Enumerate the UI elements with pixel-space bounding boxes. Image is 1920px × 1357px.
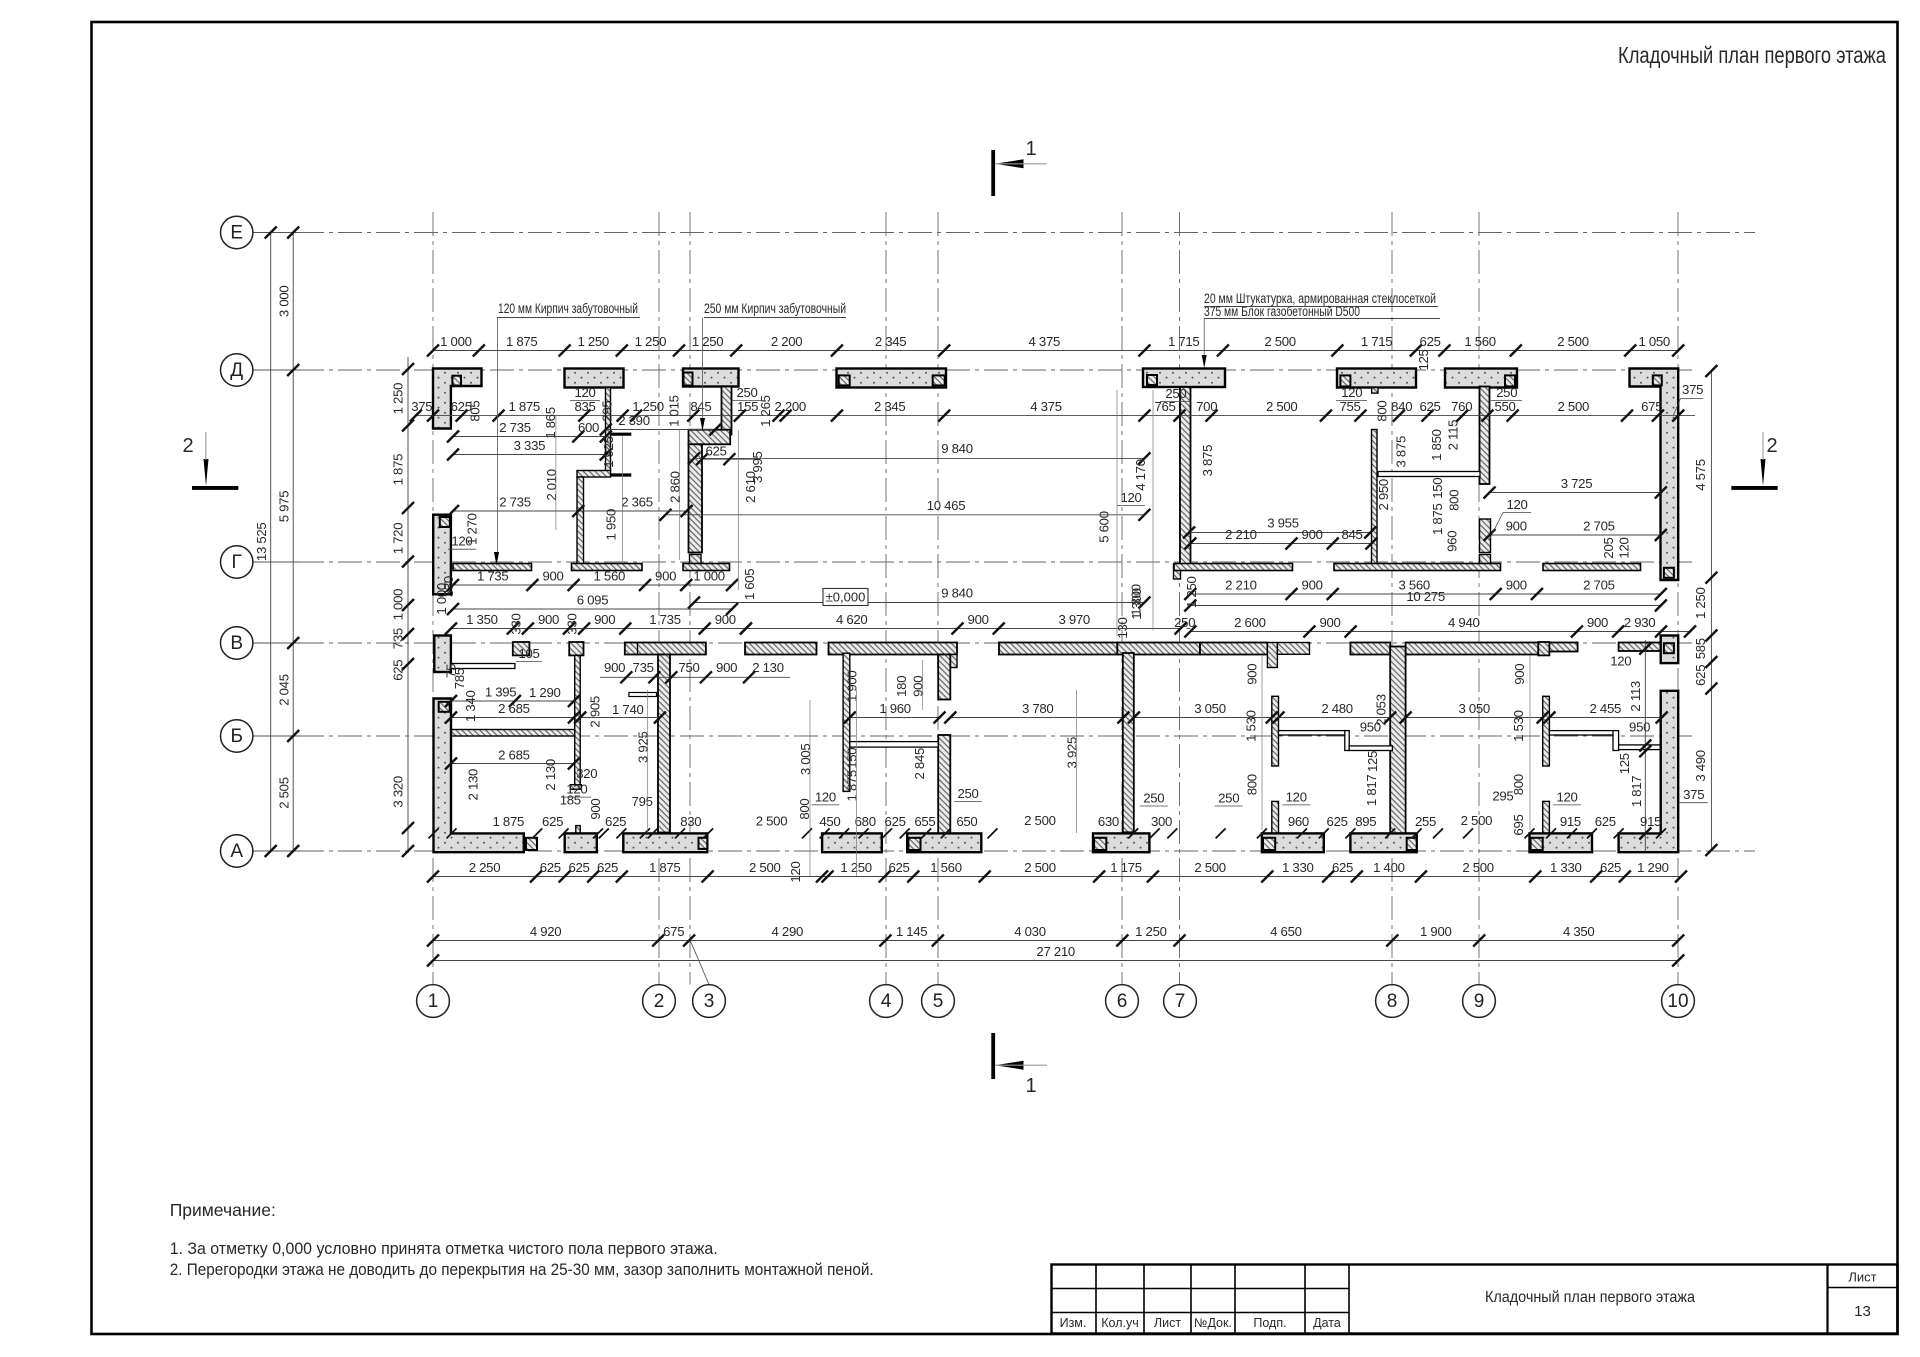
svg-text:1 875: 1 875 bbox=[1430, 503, 1445, 535]
svg-text:1 740: 1 740 bbox=[612, 702, 644, 717]
svg-text:2 860: 2 860 bbox=[668, 471, 683, 503]
svg-text:625: 625 bbox=[597, 860, 618, 875]
svg-text:5 600: 5 600 bbox=[1097, 511, 1112, 543]
svg-text:3 335: 3 335 bbox=[514, 438, 546, 453]
svg-text:2 345: 2 345 bbox=[875, 334, 907, 349]
svg-text:4 940: 4 940 bbox=[1448, 615, 1480, 630]
svg-text:105: 105 bbox=[518, 646, 539, 661]
svg-text:900: 900 bbox=[588, 799, 603, 820]
svg-text:650: 650 bbox=[956, 814, 977, 829]
svg-text:10: 10 bbox=[1667, 991, 1688, 1012]
svg-text:2 130: 2 130 bbox=[543, 759, 558, 791]
svg-text:250: 250 bbox=[1174, 615, 1195, 630]
svg-text:1 250: 1 250 bbox=[391, 383, 406, 415]
svg-text:1 330: 1 330 bbox=[1282, 860, 1314, 875]
svg-text:1 145: 1 145 bbox=[896, 924, 928, 939]
svg-text:3 970: 3 970 bbox=[1058, 612, 1090, 627]
svg-text:900: 900 bbox=[542, 569, 563, 584]
svg-text:900: 900 bbox=[1319, 615, 1340, 630]
svg-text:120: 120 bbox=[1506, 497, 1527, 512]
svg-text:295: 295 bbox=[600, 401, 615, 422]
svg-text:№Док.: №Док. bbox=[1194, 1316, 1232, 1330]
svg-text:250: 250 bbox=[1218, 791, 1239, 806]
svg-text:675: 675 bbox=[663, 924, 684, 939]
svg-text:125: 125 bbox=[1617, 753, 1632, 774]
svg-text:2: 2 bbox=[182, 435, 193, 457]
svg-text:9 840: 9 840 bbox=[941, 441, 973, 456]
svg-text:1 817: 1 817 bbox=[1364, 775, 1379, 807]
svg-text:695: 695 bbox=[1511, 814, 1526, 835]
svg-text:2 735: 2 735 bbox=[499, 420, 531, 435]
svg-text:3 725: 3 725 bbox=[1561, 476, 1593, 491]
svg-text:2 200: 2 200 bbox=[774, 399, 806, 414]
svg-text:1 900: 1 900 bbox=[1420, 924, 1452, 939]
svg-text:2 500: 2 500 bbox=[1194, 860, 1226, 875]
svg-text:375: 375 bbox=[411, 399, 432, 414]
svg-text:1. За отметку 0,000 условно пр: 1. За отметку 0,000 условно принята отме… bbox=[170, 1239, 718, 1258]
svg-text:Е: Е bbox=[230, 223, 243, 244]
svg-text:1 250: 1 250 bbox=[635, 334, 667, 349]
svg-text:2 500: 2 500 bbox=[756, 814, 788, 829]
svg-text:125: 125 bbox=[1365, 751, 1380, 772]
svg-text:1 050: 1 050 bbox=[1638, 334, 1670, 349]
svg-text:Кладочный план первого этажа: Кладочный план первого этажа bbox=[1618, 42, 1887, 68]
svg-text:655: 655 bbox=[914, 814, 935, 829]
svg-text:2 685: 2 685 bbox=[498, 701, 530, 716]
svg-text:4 575: 4 575 bbox=[1693, 459, 1708, 491]
svg-text:2 600: 2 600 bbox=[1234, 615, 1266, 630]
svg-text:625: 625 bbox=[568, 860, 589, 875]
svg-text:1 735: 1 735 bbox=[477, 569, 509, 584]
svg-text:1 250: 1 250 bbox=[1693, 587, 1708, 619]
svg-text:3 925: 3 925 bbox=[636, 731, 651, 763]
svg-text:2 500: 2 500 bbox=[1557, 334, 1589, 349]
svg-text:900: 900 bbox=[1506, 519, 1527, 534]
svg-text:900: 900 bbox=[1244, 664, 1259, 685]
svg-text:4 620: 4 620 bbox=[836, 612, 868, 627]
svg-text:3 000: 3 000 bbox=[277, 286, 292, 318]
svg-text:550: 550 bbox=[1494, 399, 1515, 414]
svg-text:2 130: 2 130 bbox=[752, 660, 784, 675]
svg-text:3 875: 3 875 bbox=[1200, 445, 1215, 477]
svg-text:120: 120 bbox=[566, 782, 587, 797]
svg-text:3 955: 3 955 bbox=[1267, 516, 1299, 531]
svg-text:120: 120 bbox=[1610, 653, 1631, 668]
svg-text:2 390: 2 390 bbox=[618, 413, 650, 428]
svg-text:900: 900 bbox=[1302, 578, 1323, 593]
svg-text:375 мм Блок газобетонный D500: 375 мм Блок газобетонный D500 bbox=[1204, 304, 1360, 319]
svg-text:795: 795 bbox=[632, 794, 653, 809]
svg-text:2 905: 2 905 bbox=[588, 696, 603, 728]
svg-text:1 000: 1 000 bbox=[693, 569, 725, 584]
svg-text:1 400: 1 400 bbox=[1373, 860, 1405, 875]
svg-text:1 300: 1 300 bbox=[1129, 584, 1144, 616]
svg-text:1 000: 1 000 bbox=[391, 589, 406, 621]
svg-text:1 875: 1 875 bbox=[493, 814, 525, 829]
svg-text:250: 250 bbox=[1165, 386, 1186, 401]
svg-text:625: 625 bbox=[605, 814, 626, 829]
svg-text:900: 900 bbox=[1512, 664, 1527, 685]
svg-text:1 735: 1 735 bbox=[649, 612, 681, 627]
svg-text:1 250: 1 250 bbox=[1184, 576, 1199, 608]
svg-text:375: 375 bbox=[1683, 787, 1704, 802]
svg-text:755: 755 bbox=[1339, 399, 1360, 414]
svg-text:180: 180 bbox=[894, 676, 909, 697]
svg-text:675: 675 bbox=[1641, 399, 1662, 414]
svg-text:1 250: 1 250 bbox=[632, 399, 664, 414]
svg-text:1 950: 1 950 bbox=[604, 509, 619, 541]
svg-text:700: 700 bbox=[1196, 399, 1217, 414]
svg-text:900: 900 bbox=[1587, 615, 1608, 630]
svg-text:1 875: 1 875 bbox=[391, 454, 406, 486]
svg-text:2 010: 2 010 bbox=[544, 469, 559, 501]
svg-text:1 330: 1 330 bbox=[1550, 860, 1582, 875]
svg-text:6 095: 6 095 bbox=[577, 593, 609, 608]
svg-text:2 950: 2 950 bbox=[1376, 479, 1391, 511]
svg-text:120: 120 bbox=[574, 385, 595, 400]
svg-text:900: 900 bbox=[715, 612, 736, 627]
svg-text:4 350: 4 350 bbox=[1563, 924, 1595, 939]
svg-text:2 113: 2 113 bbox=[1628, 681, 1643, 712]
svg-text:625: 625 bbox=[1693, 665, 1708, 686]
svg-text:250 мм Кирпич забутовочный: 250 мм Кирпич забутовочный bbox=[704, 301, 846, 316]
svg-text:800: 800 bbox=[1375, 401, 1390, 422]
svg-text:2 705: 2 705 bbox=[1583, 519, 1615, 534]
svg-text:1 720: 1 720 bbox=[391, 523, 406, 555]
svg-text:120: 120 bbox=[788, 861, 803, 882]
svg-text:2 705: 2 705 bbox=[1583, 578, 1615, 593]
svg-text:1 265: 1 265 bbox=[758, 395, 773, 427]
svg-text:900: 900 bbox=[604, 660, 625, 675]
svg-text:Б: Б bbox=[230, 726, 242, 747]
svg-text:2 365: 2 365 bbox=[621, 495, 653, 510]
svg-text:625: 625 bbox=[1332, 860, 1353, 875]
svg-text:10 465: 10 465 bbox=[927, 498, 966, 513]
svg-text:2 845: 2 845 bbox=[912, 748, 927, 780]
svg-text:1 250: 1 250 bbox=[577, 334, 609, 349]
svg-text:1 875: 1 875 bbox=[506, 334, 538, 349]
svg-text:840: 840 bbox=[1391, 399, 1412, 414]
svg-text:2 115: 2 115 bbox=[1446, 420, 1461, 451]
svg-text:1 015: 1 015 bbox=[667, 395, 682, 427]
svg-text:1 875: 1 875 bbox=[844, 770, 859, 802]
svg-text:2 500: 2 500 bbox=[1266, 399, 1298, 414]
svg-text:625: 625 bbox=[1419, 399, 1440, 414]
svg-text:785: 785 bbox=[452, 668, 467, 689]
svg-text:2 500: 2 500 bbox=[1558, 399, 1590, 414]
svg-text:2 480: 2 480 bbox=[1321, 701, 1353, 716]
svg-text:1 875: 1 875 bbox=[649, 860, 681, 875]
svg-text:950: 950 bbox=[1360, 720, 1381, 735]
svg-text:205: 205 bbox=[1601, 537, 1616, 558]
svg-text:1: 1 bbox=[1025, 138, 1036, 160]
svg-text:250: 250 bbox=[1496, 385, 1517, 400]
svg-text:895: 895 bbox=[1355, 814, 1376, 829]
svg-text:1 960: 1 960 bbox=[879, 701, 911, 716]
svg-text:5: 5 bbox=[933, 991, 944, 1012]
svg-text:1 340: 1 340 bbox=[463, 690, 478, 722]
svg-text:9: 9 bbox=[1474, 991, 1485, 1012]
svg-text:625: 625 bbox=[542, 814, 563, 829]
svg-text:7: 7 bbox=[1175, 991, 1186, 1012]
svg-text:Кол.уч: Кол.уч bbox=[1101, 1316, 1139, 1330]
svg-text:1 900: 1 900 bbox=[844, 671, 859, 703]
svg-text:1 560: 1 560 bbox=[930, 860, 962, 875]
svg-text:4 375: 4 375 bbox=[1030, 399, 1062, 414]
svg-text:330: 330 bbox=[565, 613, 580, 634]
svg-text:1 817: 1 817 bbox=[1629, 776, 1644, 808]
svg-text:Лист: Лист bbox=[1154, 1316, 1181, 1330]
svg-text:800: 800 bbox=[797, 799, 812, 820]
svg-text:2 500: 2 500 bbox=[1264, 334, 1296, 349]
svg-text:735: 735 bbox=[633, 660, 654, 675]
svg-text:4 290: 4 290 bbox=[772, 924, 804, 939]
svg-text:900: 900 bbox=[655, 569, 676, 584]
svg-text:830: 830 bbox=[680, 814, 701, 829]
svg-text:900: 900 bbox=[538, 612, 559, 627]
svg-text:125: 125 bbox=[1416, 349, 1431, 370]
svg-text:625: 625 bbox=[888, 860, 909, 875]
svg-text:330: 330 bbox=[441, 576, 456, 597]
svg-text:Дата: Дата bbox=[1313, 1316, 1341, 1330]
svg-text:625: 625 bbox=[1327, 814, 1348, 829]
svg-text:1 605: 1 605 bbox=[742, 569, 757, 601]
svg-text:1 715: 1 715 bbox=[1361, 334, 1393, 349]
svg-text:2 210: 2 210 bbox=[1225, 527, 1257, 542]
svg-text:900: 900 bbox=[1506, 578, 1527, 593]
svg-text:585: 585 bbox=[1693, 638, 1708, 659]
svg-text:3 780: 3 780 bbox=[1022, 701, 1054, 716]
svg-text:4: 4 bbox=[881, 991, 892, 1012]
svg-text:250: 250 bbox=[736, 385, 757, 400]
svg-text:300: 300 bbox=[1151, 814, 1172, 829]
svg-text:Изм.: Изм. bbox=[1060, 1316, 1087, 1330]
svg-text:3 050: 3 050 bbox=[1194, 701, 1226, 716]
svg-text:1 530: 1 530 bbox=[1511, 710, 1526, 742]
svg-text:3 005: 3 005 bbox=[798, 744, 813, 776]
svg-text:960: 960 bbox=[1288, 814, 1309, 829]
svg-text:Подп.: Подп. bbox=[1253, 1316, 1286, 1330]
svg-text:625: 625 bbox=[391, 660, 406, 681]
svg-text:2: 2 bbox=[1766, 435, 1777, 457]
svg-text:1 000: 1 000 bbox=[440, 334, 472, 349]
svg-text:3 320: 3 320 bbox=[391, 776, 406, 808]
svg-text:375: 375 bbox=[1682, 382, 1703, 397]
svg-text:1 865: 1 865 bbox=[543, 407, 558, 439]
svg-text:10 275: 10 275 bbox=[1406, 589, 1445, 604]
svg-text:2 045: 2 045 bbox=[277, 674, 292, 706]
svg-text:835: 835 bbox=[574, 399, 595, 414]
svg-text:Примечание:: Примечание: bbox=[170, 1200, 276, 1220]
svg-text:4 920: 4 920 bbox=[530, 924, 562, 939]
svg-text:2 500: 2 500 bbox=[1024, 813, 1056, 828]
svg-text:1 250: 1 250 bbox=[692, 334, 724, 349]
svg-text:2. Перегородки этажа не доводи: 2. Перегородки этажа не доводить до пере… bbox=[170, 1260, 874, 1279]
svg-text:450: 450 bbox=[819, 814, 840, 829]
svg-text:915: 915 bbox=[1560, 814, 1581, 829]
svg-text:1 290: 1 290 bbox=[529, 685, 561, 700]
svg-text:150: 150 bbox=[1430, 478, 1445, 499]
svg-text:900: 900 bbox=[594, 612, 615, 627]
svg-text:3 995: 3 995 bbox=[750, 451, 765, 483]
svg-text:3 490: 3 490 bbox=[1693, 750, 1708, 782]
svg-text:120: 120 bbox=[1286, 789, 1307, 804]
svg-text:900: 900 bbox=[911, 676, 926, 697]
svg-text:950: 950 bbox=[1629, 720, 1650, 735]
svg-text:900: 900 bbox=[716, 660, 737, 675]
svg-text:250: 250 bbox=[1143, 791, 1164, 806]
svg-text:155: 155 bbox=[737, 399, 758, 414]
svg-text:625: 625 bbox=[1420, 334, 1441, 349]
svg-text:1 250: 1 250 bbox=[1135, 924, 1167, 939]
svg-text:1 530: 1 530 bbox=[1243, 710, 1258, 742]
svg-text:150: 150 bbox=[844, 748, 859, 769]
svg-text:1 875: 1 875 bbox=[508, 399, 540, 414]
svg-text:600: 600 bbox=[578, 420, 599, 435]
svg-text:4 170: 4 170 bbox=[1133, 459, 1148, 491]
svg-text:120: 120 bbox=[451, 534, 472, 549]
svg-text:120 мм Кирпич забутовочный: 120 мм Кирпич забутовочный bbox=[498, 301, 638, 316]
svg-text:5 975: 5 975 bbox=[277, 491, 292, 523]
svg-text:А: А bbox=[230, 841, 243, 862]
svg-text:1 175: 1 175 bbox=[1110, 860, 1142, 875]
svg-text:130: 130 bbox=[1115, 617, 1130, 638]
svg-text:625: 625 bbox=[885, 814, 906, 829]
svg-text:4 650: 4 650 bbox=[1270, 924, 1302, 939]
svg-text:915: 915 bbox=[1640, 814, 1661, 829]
svg-text:120: 120 bbox=[815, 789, 836, 804]
svg-text:630: 630 bbox=[1098, 814, 1119, 829]
svg-text:960: 960 bbox=[1445, 531, 1460, 552]
svg-text:800: 800 bbox=[1244, 774, 1259, 795]
svg-text:2 930: 2 930 bbox=[1624, 615, 1656, 630]
svg-text:1: 1 bbox=[428, 991, 439, 1012]
svg-text:680: 680 bbox=[855, 814, 876, 829]
svg-text:805: 805 bbox=[468, 401, 483, 422]
svg-text:Кладочный план первого этажа: Кладочный план первого этажа bbox=[1485, 1289, 1695, 1306]
svg-text:1 290: 1 290 bbox=[1637, 860, 1669, 875]
svg-text:3: 3 bbox=[704, 991, 715, 1012]
svg-text:4 375: 4 375 bbox=[1029, 334, 1061, 349]
svg-text:2 500: 2 500 bbox=[1462, 860, 1494, 875]
svg-text:625: 625 bbox=[1595, 814, 1616, 829]
svg-text:900: 900 bbox=[1302, 527, 1323, 542]
svg-text:120: 120 bbox=[1617, 537, 1632, 558]
svg-text:Лист: Лист bbox=[1848, 1270, 1876, 1285]
svg-text:2 500: 2 500 bbox=[749, 860, 781, 875]
svg-text:120: 120 bbox=[1341, 385, 1362, 400]
svg-text:13: 13 bbox=[1854, 1303, 1871, 1320]
svg-text:3 050: 3 050 bbox=[1458, 701, 1490, 716]
svg-text:2 455: 2 455 bbox=[1590, 701, 1622, 716]
svg-text:2 505: 2 505 bbox=[277, 777, 292, 809]
svg-text:2 200: 2 200 bbox=[771, 334, 803, 349]
svg-text:±0,000: ±0,000 bbox=[826, 590, 866, 605]
svg-text:2 685: 2 685 bbox=[498, 747, 530, 762]
svg-text:2: 2 bbox=[654, 991, 665, 1012]
svg-text:Д: Д bbox=[230, 360, 243, 381]
svg-text:8: 8 bbox=[1387, 991, 1398, 1012]
svg-text:625: 625 bbox=[1600, 860, 1621, 875]
svg-text:2 500: 2 500 bbox=[1461, 813, 1493, 828]
svg-text:120: 120 bbox=[1120, 490, 1141, 505]
svg-text:845: 845 bbox=[1341, 527, 1362, 542]
svg-text:295: 295 bbox=[1492, 788, 1513, 803]
svg-text:2 210: 2 210 bbox=[1225, 578, 1257, 593]
svg-text:2 500: 2 500 bbox=[1024, 860, 1056, 875]
svg-text:625: 625 bbox=[540, 860, 561, 875]
svg-text:2 735: 2 735 bbox=[499, 495, 531, 510]
svg-text:13 525: 13 525 bbox=[254, 523, 269, 562]
svg-text:Г: Г bbox=[232, 552, 242, 573]
svg-text:1 560: 1 560 bbox=[1464, 334, 1496, 349]
svg-text:1 925: 1 925 bbox=[601, 436, 616, 468]
svg-text:1: 1 bbox=[1025, 1075, 1036, 1097]
svg-text:2 130: 2 130 bbox=[465, 769, 480, 801]
svg-text:625: 625 bbox=[705, 444, 726, 459]
svg-text:760: 760 bbox=[1451, 399, 1472, 414]
svg-text:255: 255 bbox=[1415, 814, 1436, 829]
svg-text:320: 320 bbox=[576, 766, 597, 781]
svg-text:330: 330 bbox=[508, 613, 523, 634]
svg-text:2 345: 2 345 bbox=[874, 399, 906, 414]
svg-text:1 395: 1 395 bbox=[485, 684, 517, 699]
svg-text:27 210: 27 210 bbox=[1036, 944, 1075, 959]
svg-text:3 875: 3 875 bbox=[1394, 436, 1409, 468]
svg-text:9 840: 9 840 bbox=[941, 586, 973, 601]
svg-text:900: 900 bbox=[968, 612, 989, 627]
svg-text:3 925: 3 925 bbox=[1064, 737, 1079, 769]
svg-text:В: В bbox=[230, 633, 243, 654]
svg-text:1 715: 1 715 bbox=[1168, 334, 1200, 349]
svg-text:250: 250 bbox=[957, 786, 978, 801]
svg-text:1 560: 1 560 bbox=[594, 569, 626, 584]
svg-text:735: 735 bbox=[391, 628, 406, 649]
svg-text:4 030: 4 030 bbox=[1014, 924, 1046, 939]
svg-text:2 250: 2 250 bbox=[469, 860, 501, 875]
svg-text:1 850: 1 850 bbox=[1429, 429, 1444, 461]
svg-text:845: 845 bbox=[690, 399, 711, 414]
svg-text:750: 750 bbox=[678, 660, 699, 675]
svg-text:6: 6 bbox=[1117, 991, 1128, 1012]
svg-text:800: 800 bbox=[1447, 490, 1462, 511]
svg-text:1 350: 1 350 bbox=[466, 612, 498, 627]
svg-text:120: 120 bbox=[1556, 789, 1577, 804]
